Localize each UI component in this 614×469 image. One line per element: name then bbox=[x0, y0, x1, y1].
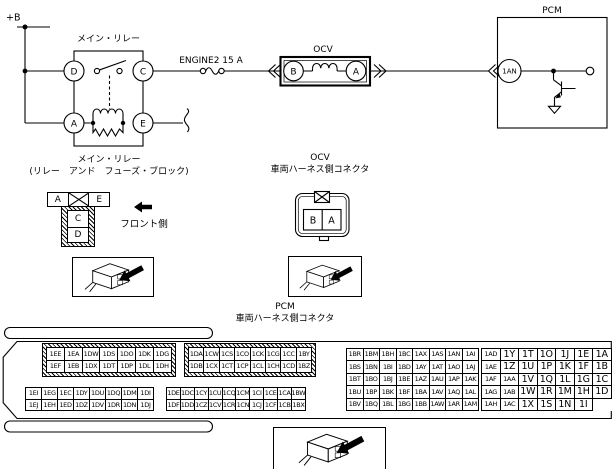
pin-cell: 1D bbox=[593, 386, 612, 398]
pin-cell: 1BB bbox=[413, 399, 430, 411]
pin-cell: 1EH bbox=[42, 400, 58, 412]
pin-cell: 1CK bbox=[251, 348, 266, 361]
power-feed-b-plus bbox=[17, 25, 64, 124]
pin-cell: 1CQ bbox=[223, 388, 237, 400]
pin-cell: 1DC bbox=[181, 388, 195, 400]
pin-cell: 1DI bbox=[138, 388, 154, 400]
pin-cell: 1BT bbox=[347, 374, 364, 386]
pin-cell: 1CE bbox=[264, 388, 278, 400]
pcm-pin-block-1-top: 1EE1EA1DW1DS1DO1DK1DG1EF1EB1DX1DT1DP1DL1… bbox=[42, 343, 176, 377]
pin-cell: 1AD bbox=[482, 349, 501, 361]
pin-cell: 1DM bbox=[122, 388, 138, 400]
pin-row: 1DB1CX1CT1CP1CL1CH1CD1BZ bbox=[189, 361, 312, 374]
pin-cell: 1DY bbox=[74, 388, 90, 400]
pin-cell: 1BS bbox=[347, 361, 364, 373]
pin-cell: 1AH bbox=[482, 399, 501, 411]
relay-connector-photo bbox=[72, 257, 154, 297]
pin-row: 1EI1EG1EC1DY1DU1DQ1DM1DI bbox=[26, 388, 154, 400]
relay-connector-title: メイン・リレー bbox=[9, 155, 209, 165]
pin-row: 1EJ1EH1ED1DZ1DV1DR1DN1DJ bbox=[26, 400, 154, 412]
pin-cell: 1DF bbox=[167, 400, 181, 412]
pin-cell: 1AP bbox=[446, 374, 463, 386]
pin-cell: 1DW bbox=[83, 348, 101, 361]
pin-cell: 1BV bbox=[347, 399, 364, 411]
front-side-label: フロント側 bbox=[112, 220, 176, 231]
front-arrow-icon bbox=[134, 201, 152, 213]
pin-cell: 1J bbox=[556, 349, 575, 361]
pin-cell: 1BU bbox=[347, 386, 364, 398]
relay-terminal-d: D bbox=[71, 68, 78, 78]
pin-cell: 1T bbox=[519, 349, 538, 361]
pin-cell: 1U bbox=[519, 361, 538, 373]
ocv-connector-drawing: B A bbox=[290, 190, 354, 242]
pin-cell: 1AV bbox=[430, 386, 447, 398]
pin-cell: 1CR bbox=[223, 400, 237, 412]
pin-cell: 1AN bbox=[446, 349, 463, 361]
pin-cell: 1AK bbox=[463, 374, 480, 386]
pin-cell: 1DS bbox=[100, 348, 118, 361]
pin-cell: 1BE bbox=[397, 374, 414, 386]
pin-cell: 1EA bbox=[65, 348, 83, 361]
pin-cell: 1BI bbox=[380, 361, 397, 373]
pin-cell: 1AT bbox=[430, 361, 447, 373]
pin-cell: 1ED bbox=[58, 400, 74, 412]
pin-row: 1AD1Y1T1O1J1E1A bbox=[482, 349, 612, 361]
pcm-pin-block-2-bottom: 1DE1DC1CY1CU1CQ1CM1CI1CE1CA1BW1DF1DD1CZ1… bbox=[166, 387, 306, 411]
pin-cell: 1V bbox=[519, 374, 538, 386]
ocv-conn-pin-b: B bbox=[310, 216, 317, 227]
pin-cell: 1DX bbox=[83, 361, 101, 374]
relay-title: メイン・リレー bbox=[77, 35, 140, 45]
ocv-title: OCV bbox=[313, 45, 333, 55]
pin-cell: 1DV bbox=[90, 400, 106, 412]
pin-cell: 1BJ bbox=[380, 374, 397, 386]
pin-cell: 1DL bbox=[136, 361, 154, 374]
pcm-title: PCM bbox=[542, 6, 561, 16]
pin-cell: 1BM bbox=[364, 349, 381, 361]
pin-row: 1AF1AA1V1Q1L1G1C bbox=[482, 374, 612, 386]
pin-cell: 1X bbox=[519, 399, 538, 411]
pin-cell: 1DG bbox=[154, 348, 172, 361]
pin-cell: 1BA bbox=[413, 386, 430, 398]
pin-cell: 1P bbox=[538, 361, 557, 373]
pin-cell: 1BW bbox=[292, 388, 306, 400]
relay-pin-c: C bbox=[68, 211, 88, 227]
pin-cell: 1CB bbox=[278, 400, 292, 412]
pin-cell: 1DO bbox=[118, 348, 136, 361]
pin-cell: 1AG bbox=[482, 386, 501, 398]
pin-cell: 1BO bbox=[364, 374, 381, 386]
pin-row: 1BV1BQ1BL1BG1BB1AW1AR1AM bbox=[347, 399, 479, 411]
pin-cell: 1A bbox=[593, 349, 612, 361]
pin-cell: 1AW bbox=[430, 399, 447, 411]
pin-cell: 1AJ bbox=[463, 361, 480, 373]
pin-cell: 1DT bbox=[100, 361, 118, 374]
pin-cell: 1DK bbox=[136, 348, 154, 361]
pin-cell: 1DE bbox=[167, 388, 181, 400]
pin-cell: 1BY bbox=[297, 348, 312, 361]
pin-row: 1BU1BP1BK1BF1BA1AV1AQ1AL bbox=[347, 386, 479, 398]
pin-row: 1BR1BM1BH1BC1AX1AS1AN1AI bbox=[347, 349, 479, 361]
pin-cell: 1BG bbox=[397, 399, 414, 411]
main-relay-symbol: D C A E bbox=[64, 51, 153, 146]
pin-cell: 1BK bbox=[380, 386, 397, 398]
pin-cell: 1CJ bbox=[250, 400, 264, 412]
pcm-connector-subtitle: 車両ハーネス側コネクタ bbox=[185, 314, 385, 324]
ocv-terminal-a: A bbox=[353, 68, 360, 78]
pin-cell: 1DA bbox=[189, 348, 204, 361]
pin-cell: 1AS bbox=[430, 349, 447, 361]
pin-cell: 1M bbox=[556, 386, 575, 398]
pin-cell: 1CV bbox=[209, 400, 223, 412]
pin-row: 1AE1Z1U1P1K1F1B bbox=[482, 361, 612, 373]
pin-cell: 1R bbox=[538, 386, 557, 398]
pin-cell: 1AE bbox=[482, 361, 501, 373]
pcm-connector-photo bbox=[273, 427, 386, 469]
relay-pin-holder: C D bbox=[61, 206, 95, 247]
pin-cell: 1CC bbox=[281, 348, 296, 361]
pin-cell: 1DU bbox=[90, 388, 106, 400]
ocv-connector-subtitle: 車両ハーネス側コネクタ bbox=[240, 165, 400, 175]
pin-cell: 1BF bbox=[397, 386, 414, 398]
pin-cell: 1K bbox=[556, 361, 575, 373]
pin-cell: 1AF bbox=[482, 374, 501, 386]
pin-cell: 1CM bbox=[236, 388, 250, 400]
relay-pin-blank bbox=[68, 192, 90, 207]
pin-cell: 1Q bbox=[538, 374, 557, 386]
pin-cell: 1EJ bbox=[26, 400, 42, 412]
relay-pin-d: D bbox=[68, 227, 88, 243]
pin-cell: 1CN bbox=[236, 400, 250, 412]
pcm-terminal-1an: 1AN bbox=[502, 68, 516, 76]
relay-pin-e: E bbox=[88, 192, 110, 207]
ocv-terminal-b: B bbox=[290, 68, 296, 78]
pin-cell: 1EF bbox=[47, 361, 65, 374]
pin-cell: 1CH bbox=[266, 361, 281, 374]
pin-cell: 1AC bbox=[501, 399, 520, 411]
pin-row: 1EE1EA1DW1DS1DO1DK1DG bbox=[47, 348, 172, 361]
pin-cell: 1B bbox=[593, 361, 612, 373]
pin-cell: 1CU bbox=[209, 388, 223, 400]
pin-cell: 1BX bbox=[292, 400, 306, 412]
connector-photo-icon bbox=[290, 259, 360, 295]
pin-cell: 1Z bbox=[501, 361, 520, 373]
pin-cell: 1L bbox=[556, 374, 575, 386]
pin-cell: 1EI bbox=[26, 388, 42, 400]
relay-pin-row: A E bbox=[47, 192, 110, 207]
pin-cell: 1BH bbox=[380, 349, 397, 361]
pin-cell: 1F bbox=[575, 361, 594, 373]
wiring-diagram-page: +B D C A E メイン・リレー bbox=[0, 0, 614, 469]
pin-row: 1DF1DD1CZ1CV1CR1CN1CJ1CF1CB1BX bbox=[167, 400, 306, 412]
pin-cell: 1DJ bbox=[138, 400, 154, 412]
relay-terminal-c: C bbox=[140, 68, 146, 78]
pin-row: 1DE1DC1CY1CU1CQ1CM1CI1CE1CA1BW bbox=[167, 388, 306, 400]
pin-cell: 1BL bbox=[380, 399, 397, 411]
pin-cell: 1O bbox=[538, 349, 557, 361]
pcm-pin-block-2-top: 1DA1CW1CS1CO1CK1CG1CC1BY1DB1CX1CT1CP1CL1… bbox=[184, 343, 316, 377]
relay-pin-a: A bbox=[47, 192, 69, 207]
pin-cell: 1CW bbox=[204, 348, 219, 361]
pin-cell: 1BP bbox=[364, 386, 381, 398]
pin-cell: 1EB bbox=[65, 361, 83, 374]
fuse-label: ENGINE2 15 A bbox=[179, 56, 243, 66]
pin-cell: 1AL bbox=[463, 386, 480, 398]
pin-row: 1AH1AC1X1S1N1I bbox=[482, 399, 612, 411]
pin-cell: 1BR bbox=[347, 349, 364, 361]
pin-cell: 1DN bbox=[122, 400, 138, 412]
pin-cell: 1BQ bbox=[364, 399, 381, 411]
pin-cell: 1CL bbox=[251, 361, 266, 374]
pin-row: 1AG1AB1W1R1M1H1D bbox=[482, 386, 612, 398]
pin-cell: 1CY bbox=[195, 388, 209, 400]
pin-cell: 1CO bbox=[235, 348, 250, 361]
pin-cell: 1C bbox=[593, 374, 612, 386]
pin-cell: 1AO bbox=[446, 361, 463, 373]
pin-cell: 1AZ bbox=[413, 374, 430, 386]
pin-cell: 1AQ bbox=[446, 386, 463, 398]
pin-cell: 1CG bbox=[266, 348, 281, 361]
pin-cell: 1I bbox=[575, 399, 594, 411]
pin-cell: 1AU bbox=[430, 374, 447, 386]
ocv-connector-photo bbox=[288, 256, 362, 297]
fuse-symbol bbox=[153, 68, 280, 75]
pin-cell: 1H bbox=[575, 386, 594, 398]
pin-cell: 1Y bbox=[501, 349, 520, 361]
pin-cell: 1N bbox=[556, 399, 575, 411]
pin-cell: 1AB bbox=[501, 386, 520, 398]
relay-connector-subtitle: (リレー アンド フューズ・ブロック) bbox=[0, 167, 218, 177]
ocv-symbol: B A bbox=[269, 57, 387, 86]
pin-row: 1BS1BN1BI1BD1AY1AT1AO1AJ bbox=[347, 361, 479, 373]
pin-cell: 1AM bbox=[463, 399, 480, 411]
pin-cell: 1DZ bbox=[74, 400, 90, 412]
power-label: +B bbox=[6, 13, 20, 24]
relay-terminal-e: E bbox=[140, 120, 146, 130]
pin-cell: 1BZ bbox=[297, 361, 312, 374]
ocv-conn-pin-a: A bbox=[328, 216, 335, 227]
pin-cell: 1CT bbox=[220, 361, 235, 374]
pin-cell: 1BN bbox=[364, 361, 381, 373]
relay-terminal-a: A bbox=[71, 120, 78, 130]
pin-cell: 1DB bbox=[189, 361, 204, 374]
pin-row: 1EF1EB1DX1DT1DP1DL1DH bbox=[47, 361, 172, 374]
pin-cell: 1W bbox=[519, 386, 538, 398]
pcm-pin-block-3: 1BR1BM1BH1BC1AX1AS1AN1AI1BS1BN1BI1BD1AY1… bbox=[346, 348, 479, 411]
pin-cell: 1AA bbox=[501, 374, 520, 386]
pin-cell: 1CX bbox=[204, 361, 219, 374]
pin-cell: 1BD bbox=[397, 361, 414, 373]
inline-connector-icon bbox=[489, 65, 496, 78]
pcm-symbol: 1AN bbox=[498, 18, 608, 129]
pin-row: 1DA1CW1CS1CO1CK1CG1CC1BY bbox=[189, 348, 312, 361]
pcm-pin-block-1-bottom: 1EI1EG1EC1DY1DU1DQ1DM1DI1EJ1EH1ED1DZ1DV1… bbox=[25, 387, 154, 411]
pin-cell: 1EC bbox=[58, 388, 74, 400]
pin-cell: 1DQ bbox=[106, 388, 122, 400]
pin-cell: 1EE bbox=[47, 348, 65, 361]
pin-cell: 1CI bbox=[250, 388, 264, 400]
pin-cell: 1DP bbox=[118, 361, 136, 374]
pin-cell: 1G bbox=[575, 374, 594, 386]
pin-cell: 1CD bbox=[281, 361, 296, 374]
pin-cell: 1CZ bbox=[195, 400, 209, 412]
connector-photo-icon bbox=[74, 259, 152, 295]
ocv-connector-title: OCV bbox=[240, 153, 400, 163]
pin-cell: 1AI bbox=[463, 349, 480, 361]
pin-cell: 1AX bbox=[413, 349, 430, 361]
pin-cell: 1CA bbox=[278, 388, 292, 400]
pin-cell: 1CP bbox=[235, 361, 250, 374]
pin-cell: 1EG bbox=[42, 388, 58, 400]
pin-cell: 1DR bbox=[106, 400, 122, 412]
pin-cell: 1S bbox=[538, 399, 557, 411]
connector-photo-icon bbox=[286, 430, 374, 468]
pin-cell: 1CF bbox=[264, 400, 278, 412]
pin-cell: 1E bbox=[575, 349, 594, 361]
pin-cell: 1CS bbox=[220, 348, 235, 361]
pin-cell: 1BC bbox=[397, 349, 414, 361]
pin-cell: 1AR bbox=[446, 399, 463, 411]
pin-cell: 1AY bbox=[413, 361, 430, 373]
pin-cell: 1DH bbox=[154, 361, 172, 374]
pin-cell: 1DD bbox=[181, 400, 195, 412]
wire-e-continuation bbox=[153, 109, 189, 133]
pcm-pin-block-4: 1AD1Y1T1O1J1E1A1AE1Z1U1P1K1F1B1AF1AA1V1Q… bbox=[481, 348, 612, 411]
pcm-connector-title: PCM bbox=[185, 302, 385, 312]
pin-row: 1BT1BO1BJ1BE1AZ1AU1AP1AK bbox=[347, 374, 479, 386]
